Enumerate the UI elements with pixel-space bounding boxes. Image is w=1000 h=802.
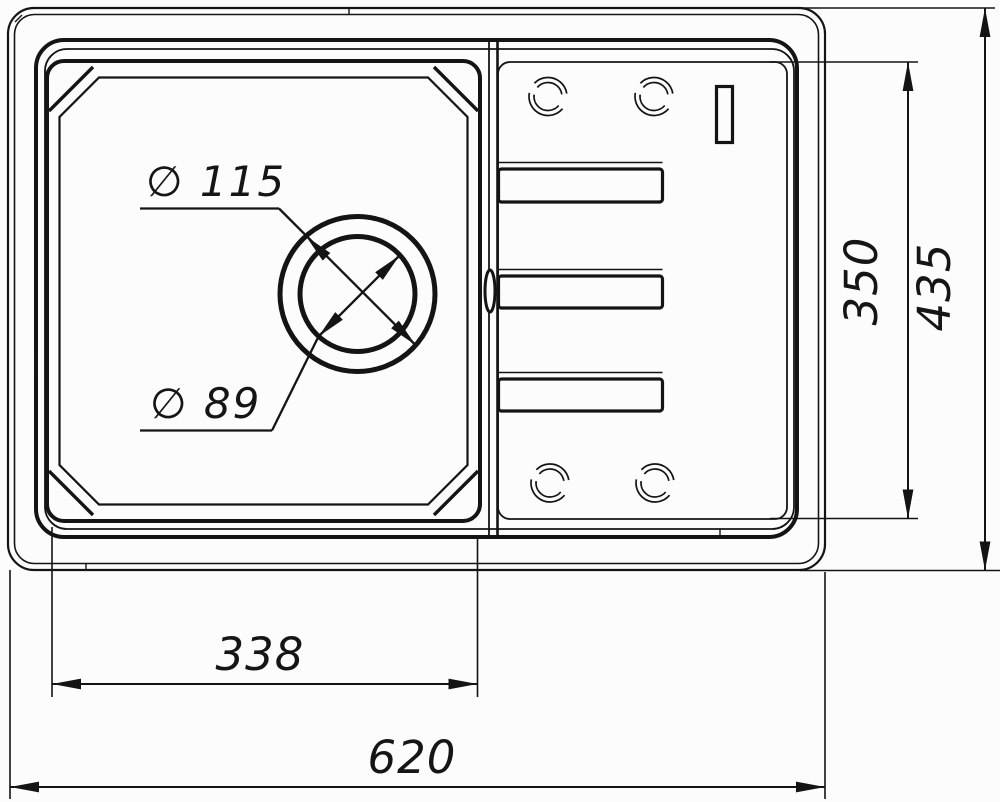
dimension-label-overall-depth: 435 [908,243,961,332]
dimension-label-bowl-width: 338 [216,628,305,681]
drainboard [485,42,787,536]
dimension-435 [800,8,1000,571]
drawing-canvas: ∅ 115 ∅ 89 350 435 338 620 [0,0,1000,802]
rib-3 [499,379,663,411]
dimension-label-drain-inner: ∅ 89 [150,379,261,428]
rib-1 [499,169,663,202]
dimension-label-overall-width: 620 [368,731,457,784]
drain-outer-circle [280,217,435,372]
dimension-label-drain-outer: ∅ 115 [146,157,286,206]
drain-circles [280,217,435,372]
bowl [47,61,480,521]
overflow-mark [485,270,495,312]
sink-technical-drawing: ∅ 115 ∅ 89 350 435 338 620 [0,0,1000,802]
rib-2 [499,276,663,308]
drain-inner-circle [300,237,415,352]
drainboard-ribs [499,163,663,412]
dimension-label-drainboard-depth: 350 [835,237,888,326]
bowl-inner-chamfered-edge [60,78,468,505]
faucet-hole-slot [717,87,733,143]
